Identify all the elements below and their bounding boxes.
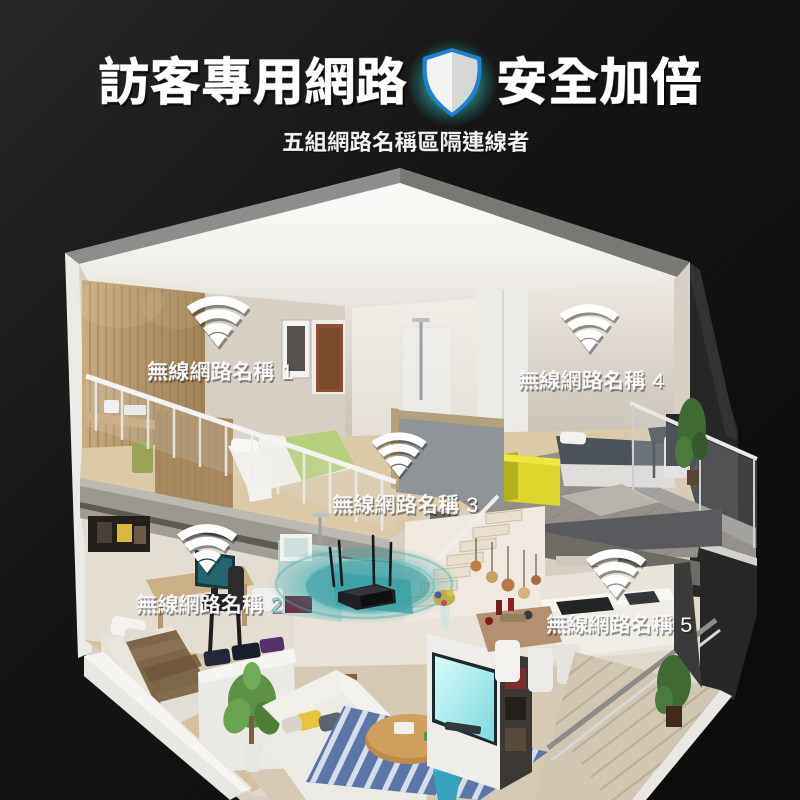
svg-text:1: 1 bbox=[281, 359, 293, 384]
svg-text:4: 4 bbox=[652, 368, 664, 393]
svg-text:5: 5 bbox=[680, 612, 692, 637]
svg-text:3: 3 bbox=[466, 492, 478, 517]
svg-text:2: 2 bbox=[270, 592, 282, 617]
